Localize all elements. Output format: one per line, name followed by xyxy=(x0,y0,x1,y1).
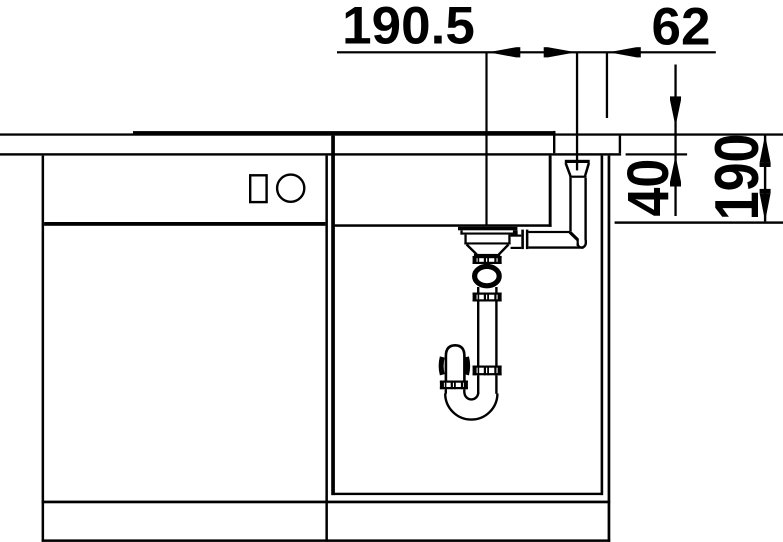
svg-text:190.5: 190.5 xyxy=(342,0,475,56)
svg-text:190: 190 xyxy=(702,134,772,221)
svg-text:62: 62 xyxy=(652,0,711,57)
svg-text:40: 40 xyxy=(615,159,681,217)
